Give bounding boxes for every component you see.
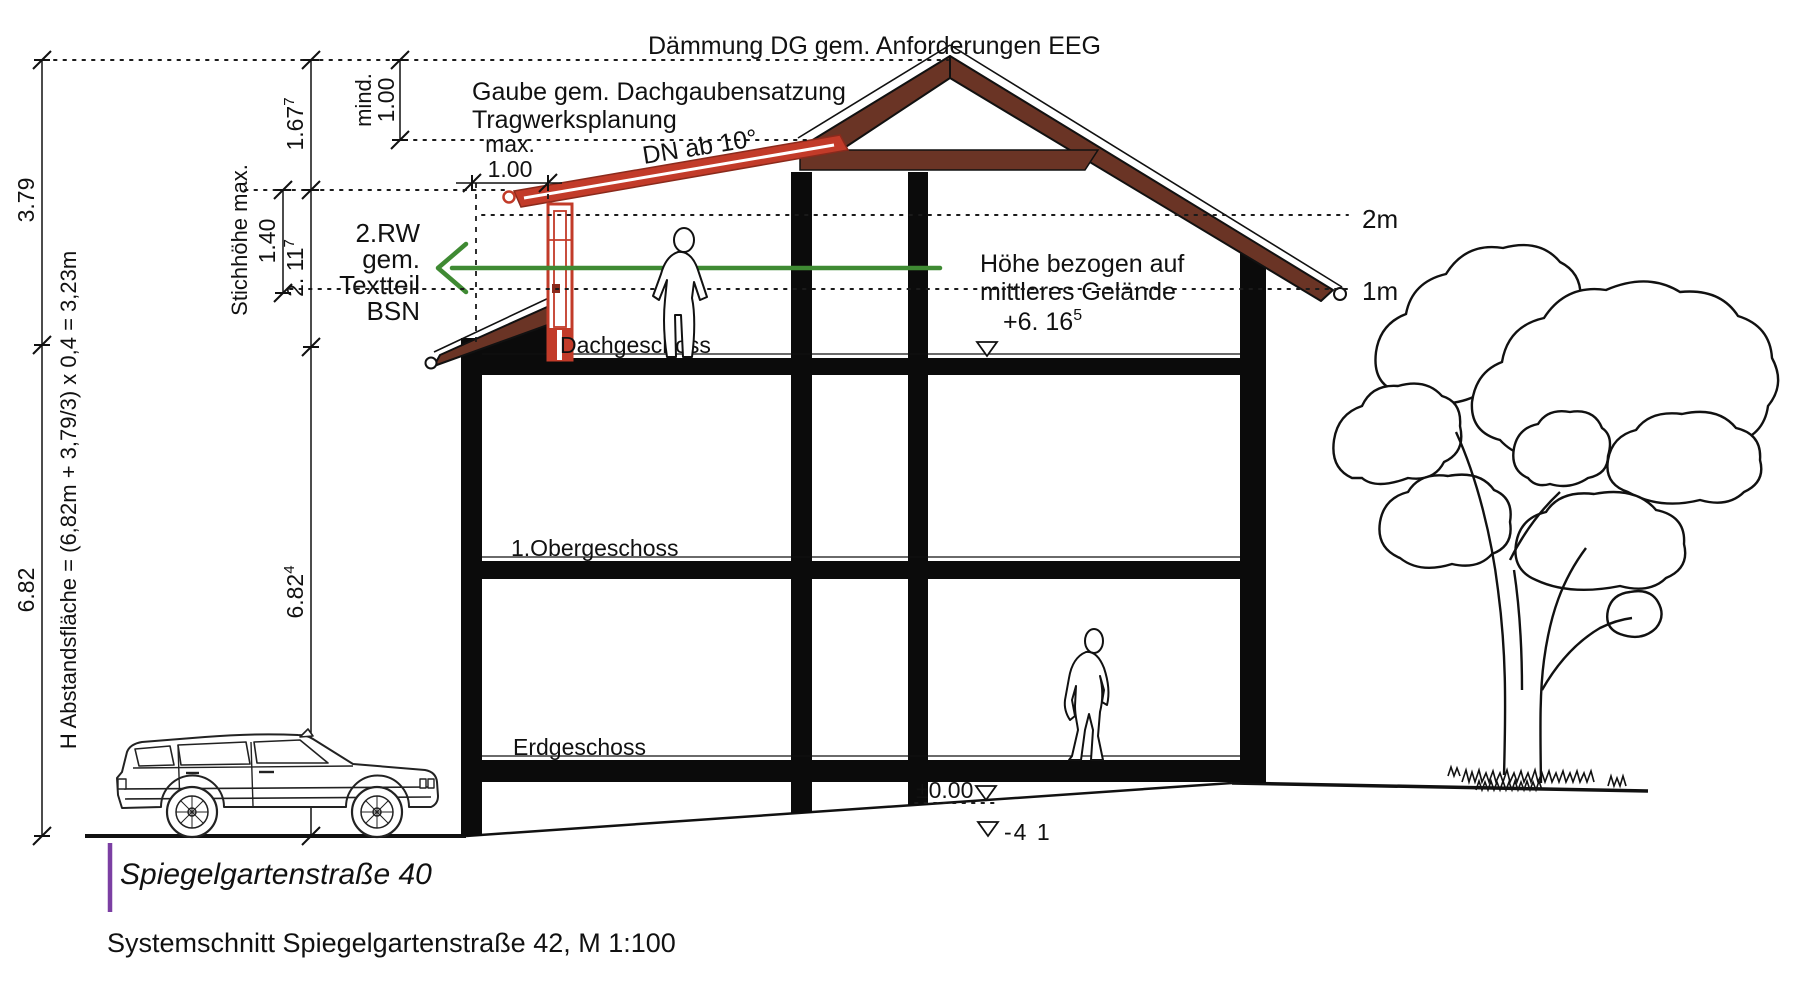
dim-stichhoehe-value: 1.40 <box>254 219 280 264</box>
attic-floor-slab <box>461 358 1266 375</box>
gutter-old-roof <box>426 358 437 369</box>
right-exterior-wall <box>1240 253 1266 783</box>
upper-floor-slab <box>461 561 1266 579</box>
car-grille-left <box>420 779 426 788</box>
dim-total-height: 6.824 <box>281 565 308 618</box>
level-minus: -4 1 <box>1004 819 1052 845</box>
floor-label-ground: Erdgeschoss <box>513 734 646 760</box>
car <box>117 729 438 837</box>
insulation-note: Dämmung DG gem. Anforderungen EEG <box>648 32 1101 60</box>
dim-min-value: 1.00 <box>373 78 399 123</box>
tree-lobe-small <box>1607 591 1661 637</box>
escape-route-line4: BSN <box>367 296 420 326</box>
dimension-labels: 3.79 6.82 H Abstandsfläche = (6,82m + 3,… <box>13 73 535 749</box>
tree-lobe <box>1515 492 1685 590</box>
dormer-gutter <box>504 192 515 203</box>
dormer-note-line1: Gaube gem. Dachgaubensatzung <box>472 78 846 106</box>
dim-dormer-height: 2. 117 <box>281 239 308 297</box>
marker-2m: 2m <box>1362 204 1398 234</box>
person-ground-head <box>1085 629 1103 653</box>
car-grille-right <box>428 779 434 788</box>
dim-setback-formula: H Abstandsfläche = (6,82m + 3,79/3) x 0,… <box>56 251 81 749</box>
car-window-middle <box>178 742 250 765</box>
dimension-lines <box>33 51 562 845</box>
title-block: Spiegelgartenstraße 40 Systemschnitt Spi… <box>107 843 676 958</box>
tree-lobe <box>1333 384 1461 484</box>
collar-beam <box>800 150 1098 170</box>
level-minus-marker <box>978 822 998 836</box>
floor-labels: Dachgeschoss 1.Obergeschoss Erdgeschoss <box>511 332 711 760</box>
trunk-inner-line <box>1514 570 1522 690</box>
dim-roof-height: 3.79 <box>13 178 39 223</box>
person-attic-head <box>674 228 694 252</box>
car-taillight <box>118 779 126 789</box>
tree-lobe <box>1379 475 1510 568</box>
grass-scribble <box>1462 770 1594 782</box>
grass-tuft <box>1448 767 1460 776</box>
tree-canopy <box>1333 245 1778 637</box>
level-zero-marker <box>976 786 996 800</box>
terrain-right <box>1232 783 1648 791</box>
height-ref-line1: Höhe bezogen auf <box>980 250 1184 278</box>
grass-tuft <box>1608 776 1626 786</box>
drawing-caption: Systemschnitt Spiegelgartenstraße 42, M … <box>107 928 676 958</box>
street-label: Spiegelgartenstraße 40 <box>120 858 432 891</box>
terrain-under-building <box>466 783 1232 836</box>
car-wheel-rear <box>167 787 217 837</box>
level-zero: ±0.00 <box>916 777 973 803</box>
dim-stichhoehe-label: Stichhöhe max. <box>227 164 252 316</box>
dim-eaves-height: 6.82 <box>13 568 39 613</box>
marker-1m: 1m <box>1362 276 1398 306</box>
height-ref-line2: mittleres Gelände <box>980 278 1176 306</box>
dim-max-value: 1.00 <box>488 156 533 182</box>
ground-floor-slab <box>461 760 1266 782</box>
dormer-note-line2: Tragwerksplanung <box>472 106 677 134</box>
dim-ridge-clearance: 1.677 <box>281 97 308 150</box>
car-wheel-front <box>352 787 402 837</box>
floor-label-upper: 1.Obergeschoss <box>511 535 678 561</box>
person-ground-floor <box>1065 629 1109 760</box>
dim-max-label: max. <box>485 131 535 157</box>
height-ref-value: +6. 165 <box>1003 307 1082 336</box>
person-ground-body <box>1065 652 1109 760</box>
architectural-section-drawing: 3.79 6.82 H Abstandsfläche = (6,82m + 3,… <box>0 0 1800 981</box>
tree <box>1333 245 1778 790</box>
car-window-rear <box>135 746 174 766</box>
